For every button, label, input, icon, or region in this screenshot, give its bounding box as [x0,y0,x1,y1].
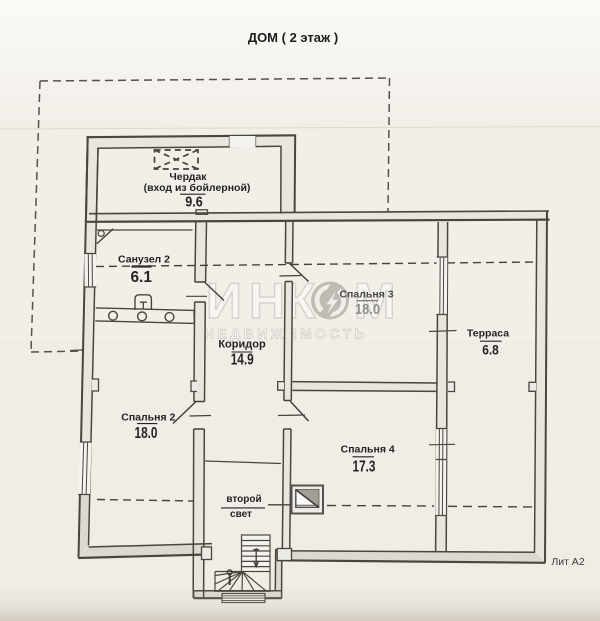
svg-text:17.3: 17.3 [353,458,376,475]
svg-text:Лит А2: Лит А2 [551,556,584,568]
svg-text:9.6: 9.6 [185,195,203,211]
svg-text:Спальня 2: Спальня 2 [121,411,175,423]
svg-text:И: И [206,273,242,329]
svg-text:6.8: 6.8 [482,342,499,358]
svg-text:свет: свет [230,509,252,520]
svg-text:18.0: 18.0 [355,301,380,318]
svg-text:14.9: 14.9 [231,352,254,369]
svg-text:Спальня 3: Спальня 3 [339,289,393,301]
svg-text:Терраса: Терраса [467,328,509,340]
svg-text:18.0: 18.0 [135,425,158,442]
svg-text:(вход из бойлерной): (вход из бойлерной) [144,182,251,194]
svg-text:Санузел 2: Санузел 2 [118,254,170,266]
svg-text:второй: второй [226,494,261,505]
svg-text:ДОМ ( 2 этаж ): ДОМ ( 2 этаж ) [248,30,338,45]
svg-text:Коридор: Коридор [218,339,266,351]
svg-text:Спальня 4: Спальня 4 [341,444,395,456]
svg-text:6.1: 6.1 [130,269,152,286]
svg-text:Н: Н [249,273,285,329]
